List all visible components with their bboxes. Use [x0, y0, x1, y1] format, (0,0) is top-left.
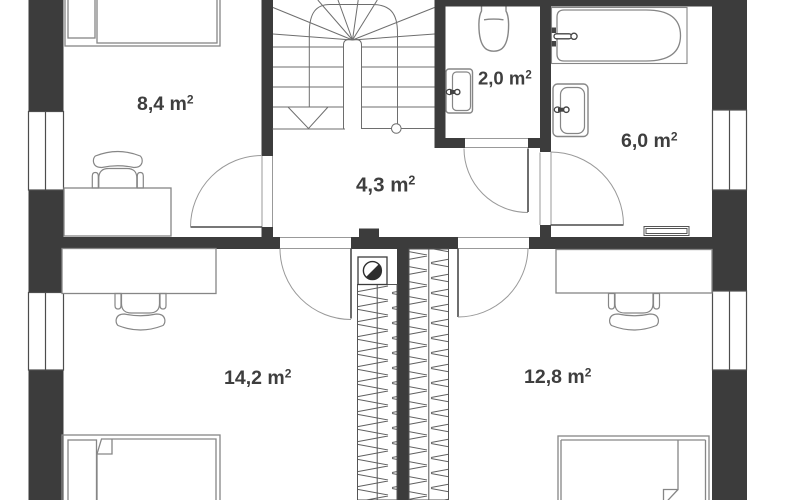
svg-text:14,2 m2: 14,2 m2 [224, 367, 292, 390]
svg-text:8,4 m2: 8,4 m2 [137, 93, 194, 116]
svg-text:4,3 m2: 4,3 m2 [356, 174, 415, 197]
svg-text:2,0 m2: 2,0 m2 [478, 68, 532, 89]
svg-text:6,0 m2: 6,0 m2 [621, 130, 678, 153]
svg-text:12,8 m2: 12,8 m2 [524, 366, 592, 389]
